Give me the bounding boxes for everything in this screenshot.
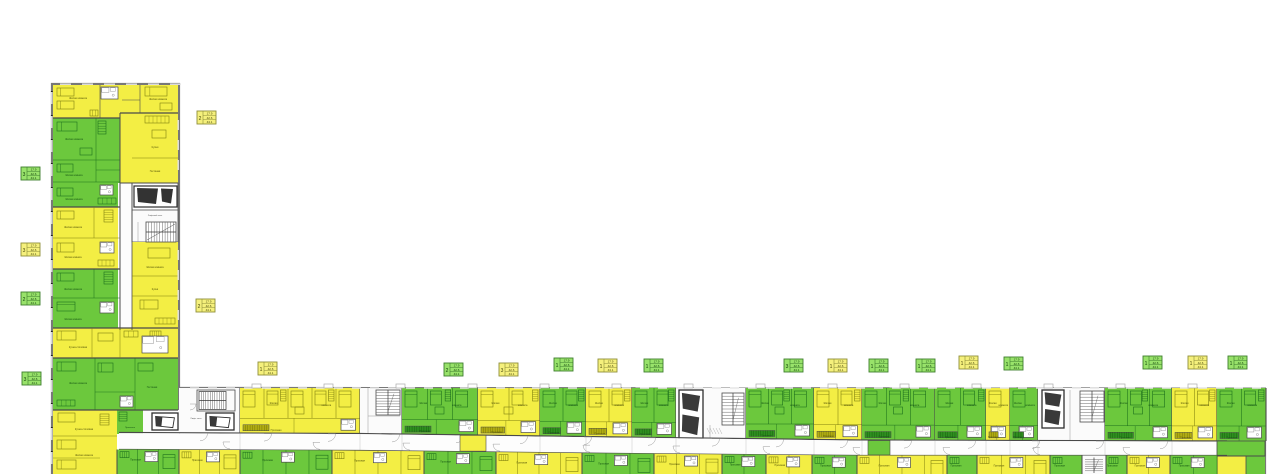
svg-text:1: 1 [961, 361, 964, 367]
svg-text:Прихожая: Прихожая [516, 463, 527, 465]
svg-text:Прихожая: Прихожая [879, 437, 890, 439]
svg-text:3: 3 [23, 172, 26, 178]
svg-text:1: 1 [1230, 361, 1233, 367]
svg-text:Прихожая: Прихожая [994, 466, 1005, 468]
svg-text:2: 2 [23, 297, 26, 303]
svg-text:44.1: 44.1 [207, 120, 213, 124]
svg-text:3: 3 [786, 364, 789, 370]
svg-text:Жилая комната: Жилая комната [65, 138, 84, 141]
svg-text:44.1: 44.1 [454, 372, 460, 376]
svg-text:44.1: 44.1 [31, 301, 37, 305]
svg-text:44.1: 44.1 [31, 252, 37, 256]
svg-text:Прихожая: Прихожая [1135, 466, 1146, 468]
svg-text:комната: комната [614, 404, 624, 407]
svg-text:комната: комната [518, 404, 528, 407]
svg-text:Жилая: Жилая [878, 402, 887, 405]
svg-text:1: 1 [1190, 361, 1193, 367]
svg-text:Прихожая: Прихожая [262, 460, 273, 462]
svg-text:44.1: 44.1 [1153, 365, 1159, 369]
svg-text:Прихожая: Прихожая [669, 464, 680, 466]
svg-text:комната: комната [790, 404, 800, 407]
svg-text:Прихожая: Прихожая [1180, 437, 1191, 439]
svg-text:комната: комната [568, 404, 578, 407]
svg-text:3: 3 [23, 248, 26, 254]
svg-text:Кухня: Кухня [152, 146, 159, 149]
svg-text:Жилая комната: Жилая комната [65, 198, 83, 201]
svg-text:комната: комната [452, 404, 462, 407]
svg-text:1: 1 [646, 364, 649, 370]
svg-text:Прихожая: Прихожая [419, 431, 430, 433]
svg-text:44.1: 44.1 [1238, 365, 1244, 369]
svg-text:Жилая комната: Жилая комната [64, 288, 83, 291]
svg-text:комната: комната [1025, 404, 1035, 407]
svg-text:Прихожая: Прихожая [951, 466, 962, 468]
svg-text:2: 2 [198, 304, 201, 310]
svg-text:Жилая: Жилая [640, 402, 649, 405]
svg-text:комната: комната [999, 404, 1009, 407]
svg-text:2: 2 [199, 116, 202, 122]
svg-text:Кухня: Кухня [152, 288, 159, 291]
svg-text:Жилая комната: Жилая комната [146, 266, 164, 269]
svg-text:Прихожая: Прихожая [1054, 466, 1065, 468]
svg-text:Жилая: Жилая [823, 402, 832, 405]
svg-text:Прихожая: Прихожая [879, 466, 890, 468]
svg-text:44.1: 44.1 [654, 368, 660, 372]
svg-text:комната: комната [1200, 404, 1210, 407]
svg-text:Прихожая: Прихожая [1226, 438, 1237, 440]
svg-text:Жилая комната: Жилая комната [65, 174, 83, 177]
svg-text:Жилая: Жилая [549, 402, 558, 405]
svg-text:3: 3 [501, 368, 504, 374]
svg-text:Жилая: Жилая [595, 402, 604, 405]
svg-text:44.1: 44.1 [608, 368, 614, 372]
svg-text:1: 1 [1006, 362, 1009, 368]
svg-text:комната: комната [967, 404, 977, 407]
svg-text:Прихожая: Прихожая [730, 465, 741, 467]
svg-text:1: 1 [871, 364, 874, 370]
svg-text:Жилая: Жилая [761, 402, 770, 405]
svg-text:Кухня-столовая: Кухня-столовая [75, 428, 94, 431]
svg-text:Жилая: Жилая [419, 402, 428, 405]
svg-text:Жилая комната: Жилая комната [64, 226, 83, 229]
svg-text:комната: комната [844, 404, 854, 407]
svg-text:44.1: 44.1 [32, 381, 38, 385]
svg-text:комната: комната [1248, 404, 1258, 407]
svg-text:Прихожая: Прихожая [491, 432, 502, 434]
svg-text:Жилая: Жилая [1120, 402, 1129, 405]
svg-text:комната: комната [659, 404, 669, 407]
svg-text:Прихожая: Прихожая [820, 465, 831, 467]
svg-text:Прихожая: Прихожая [440, 462, 451, 464]
svg-text:2: 2 [446, 368, 449, 374]
svg-text:Прихожая: Прихожая [598, 463, 609, 465]
svg-text:комната: комната [910, 404, 920, 407]
svg-text:Прихожая: Прихожая [761, 436, 772, 438]
svg-text:3: 3 [24, 377, 27, 383]
svg-text:44.1: 44.1 [969, 365, 975, 369]
svg-text:Жилая: Жилая [945, 402, 954, 405]
svg-text:44.1: 44.1 [879, 368, 885, 372]
svg-text:Жилая комната: Жилая комната [149, 98, 168, 101]
svg-text:Прихожая: Прихожая [823, 436, 834, 438]
svg-text:Жилая: Жилая [1014, 402, 1023, 405]
svg-text:Жилая комната: Жилая комната [69, 382, 88, 385]
svg-text:44.1: 44.1 [1014, 366, 1020, 370]
svg-text:44.1: 44.1 [794, 368, 800, 372]
svg-text:Прихожая: Прихожая [125, 427, 136, 429]
svg-text:1: 1 [1145, 361, 1148, 367]
svg-text:Гостиная: Гостиная [150, 170, 161, 173]
svg-text:44.1: 44.1 [268, 371, 274, 375]
svg-text:Прихожая: Прихожая [774, 465, 785, 467]
svg-text:Прихожая: Прихожая [354, 461, 365, 463]
svg-text:Жилая комната: Жилая комната [75, 454, 94, 457]
svg-text:44.1: 44.1 [206, 308, 212, 312]
svg-text:Гостиная: Гостиная [147, 386, 158, 389]
svg-text:комната: комната [322, 404, 332, 407]
svg-text:Жилая: Жилая [491, 402, 500, 405]
svg-text:Жилая: Жилая [1181, 402, 1190, 405]
svg-text:1: 1 [260, 367, 263, 373]
svg-text:Прихожая: Прихожая [1179, 466, 1190, 468]
svg-text:Прихожая: Прихожая [271, 430, 282, 432]
svg-text:Кухня-столовая: Кухня-столовая [69, 346, 88, 349]
svg-text:Прихожая: Прихожая [548, 433, 559, 435]
svg-text:Прихожая: Прихожая [130, 460, 141, 462]
svg-text:Прихожая: Прихожая [1107, 466, 1118, 468]
svg-text:1: 1 [600, 364, 603, 370]
svg-text:Прихожая: Прихожая [988, 437, 999, 439]
svg-text:1: 1 [556, 363, 559, 369]
svg-text:44.1: 44.1 [564, 367, 570, 371]
svg-text:44.1: 44.1 [838, 368, 844, 372]
svg-text:Жилая: Жилая [989, 402, 998, 405]
svg-text:комната: комната [1149, 404, 1159, 407]
svg-text:44.1: 44.1 [509, 372, 515, 376]
svg-text:Прихожая: Прихожая [594, 433, 605, 435]
svg-text:Жилая комната: Жилая комната [64, 318, 82, 321]
svg-text:Прихожая: Прихожая [1013, 437, 1024, 439]
svg-text:1: 1 [918, 364, 921, 370]
svg-text:Прихожая: Прихожая [1120, 437, 1131, 439]
svg-text:Прихожая: Прихожая [945, 437, 956, 439]
svg-text:Жилая комната: Жилая комната [64, 256, 82, 259]
svg-text:Жилая: Жилая [1227, 402, 1236, 405]
svg-text:Лифт. холл: Лифт. холл [190, 417, 202, 420]
svg-text:1: 1 [830, 364, 833, 370]
svg-text:44.1: 44.1 [31, 176, 37, 180]
svg-text:Жилая: Жилая [270, 402, 279, 405]
svg-text:Прихожая: Прихожая [192, 460, 203, 462]
svg-text:44.1: 44.1 [926, 368, 932, 372]
svg-text:Прихожая: Прихожая [640, 434, 651, 436]
svg-text:Жилая комната: Жилая комната [69, 97, 88, 100]
svg-text:44.1: 44.1 [1198, 365, 1204, 369]
svg-text:Лифтовой холл: Лифтовой холл [148, 214, 163, 217]
